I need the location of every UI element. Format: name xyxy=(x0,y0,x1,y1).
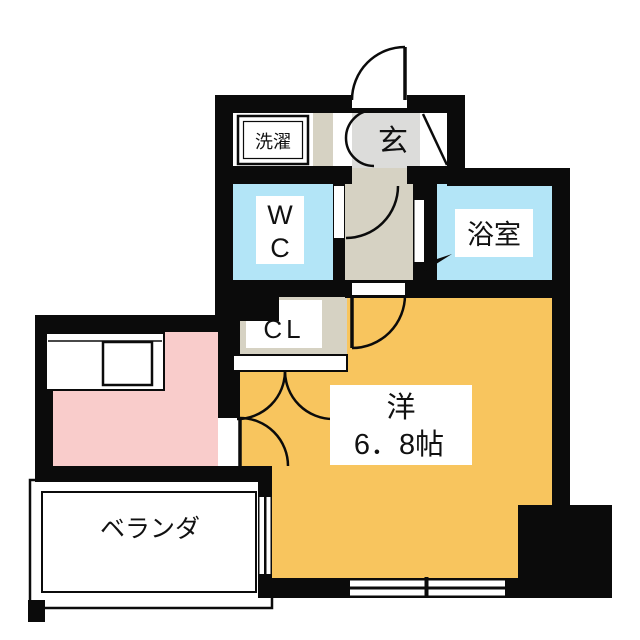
wc-door-sill xyxy=(334,186,344,238)
wall-mid-left xyxy=(215,166,352,184)
floor-plan-canvas: 洗濯 玄 W C 浴室 CL 洋 6．8帖 ベランダ xyxy=(0,0,640,640)
wall-kitchen-bottom xyxy=(35,466,272,482)
bathroom-label: 浴室 xyxy=(467,220,521,250)
entrance-label: 玄 xyxy=(378,125,408,158)
kitchen-sink xyxy=(103,342,152,385)
wall-closet-chunk xyxy=(233,297,279,321)
wc-label-line1: W xyxy=(267,200,293,230)
veranda-floor xyxy=(30,480,272,608)
south-window-tick xyxy=(425,577,429,598)
veranda-label: ベランダ xyxy=(100,515,200,543)
wall-bath-bottom xyxy=(413,280,552,298)
main-room-size-label: 6．8帖 xyxy=(354,428,444,461)
laundry-label: 洗濯 xyxy=(255,132,291,152)
room-door-sill xyxy=(352,283,405,295)
wall-bath-top xyxy=(447,168,570,186)
wall-pillar xyxy=(518,505,612,598)
wall-closet-top xyxy=(215,280,347,297)
bathroom-door-sill xyxy=(415,200,425,262)
closet-door-sill xyxy=(233,355,347,371)
main-room-name-label: 洋 xyxy=(386,391,415,424)
floor-plan: 洗濯 玄 W C 浴室 CL 洋 6．8帖 ベランダ xyxy=(0,0,640,640)
wc-label-line2: C xyxy=(270,233,290,263)
wall-top xyxy=(215,95,465,113)
entrance-strip-floor xyxy=(313,108,335,168)
wall-kitchen-top xyxy=(35,315,225,332)
wall-stub-bottom-left xyxy=(28,600,45,622)
kitchen-door-opening xyxy=(218,418,240,466)
front-door-sill xyxy=(352,95,407,108)
entrance-sill-zone xyxy=(333,113,352,168)
veranda-window-mullion xyxy=(264,497,267,574)
